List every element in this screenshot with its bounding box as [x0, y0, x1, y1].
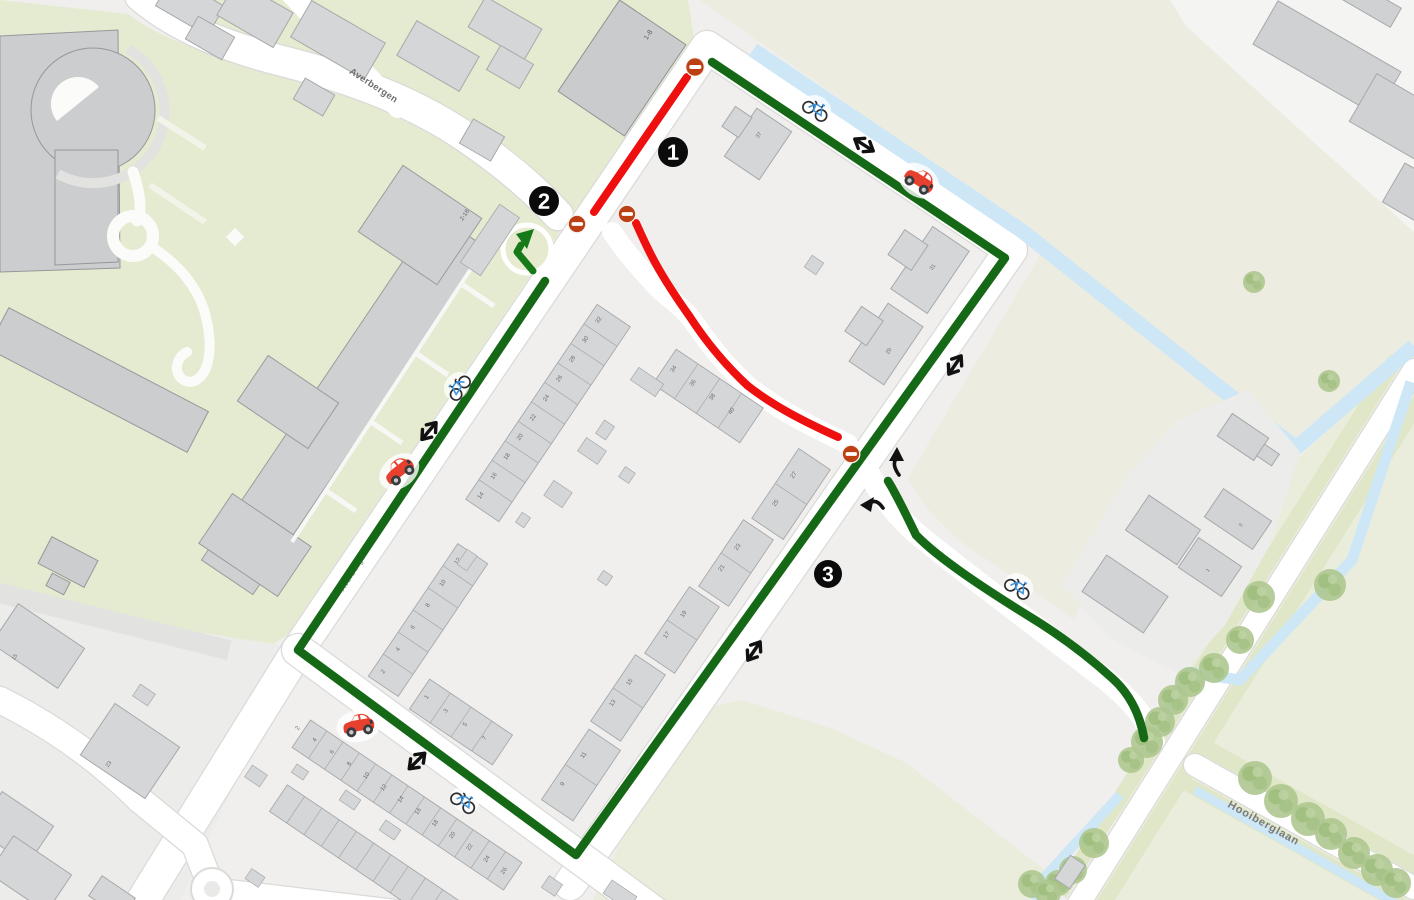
svg-text:3: 3 — [822, 563, 834, 586]
svg-text:2: 2 — [538, 189, 550, 214]
svg-text:1: 1 — [667, 140, 679, 165]
